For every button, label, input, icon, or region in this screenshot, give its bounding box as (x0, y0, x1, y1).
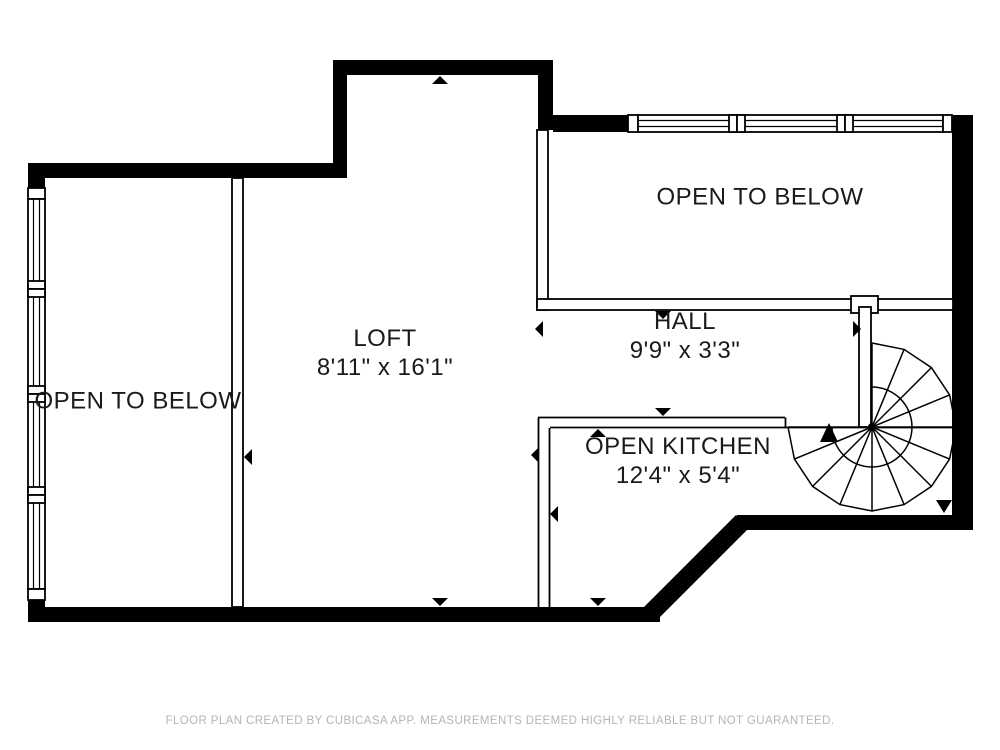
wall-bottom (28, 607, 660, 622)
window-mullion (837, 115, 845, 132)
room-name: LOFT (317, 324, 453, 353)
exterior-walls (28, 60, 973, 622)
wall-right (952, 115, 973, 530)
top-window (628, 115, 952, 132)
window-mullion (737, 115, 745, 132)
wall-left-top-block (28, 163, 45, 188)
window-sill (28, 589, 45, 600)
wall-bump-right (538, 60, 553, 130)
wall-hall-top (537, 299, 953, 310)
room-label-loft: LOFT 8'11" x 16'1" (317, 324, 453, 382)
disclaimer-text: FLOOR PLAN CREATED BY CUBICASA APP. MEAS… (0, 715, 1000, 727)
marker-down-icon (432, 598, 448, 606)
room-name: OPEN TO BELOW (35, 387, 242, 416)
room-label-open-to-below-upper: OPEN TO BELOW (657, 183, 864, 212)
window-mullion (729, 115, 737, 132)
wall-top-left (28, 163, 347, 178)
room-label-open-to-below-left: OPEN TO BELOW (35, 387, 242, 416)
stair-center-post (868, 423, 876, 431)
room-label-hall: HALL 9'9" x 3'3" (630, 307, 740, 365)
room-name: HALL (630, 307, 740, 336)
window-sill (628, 115, 638, 132)
marker-down-icon (655, 408, 671, 416)
room-name: OPEN KITCHEN (585, 432, 771, 461)
wall-diagonal (644, 515, 747, 622)
room-dimensions: 9'9" x 3'3" (630, 336, 740, 365)
window-mullion (845, 115, 853, 132)
marker-up-icon (432, 76, 448, 84)
room-dimensions: 8'11" x 16'1" (317, 353, 453, 382)
floor-plan-drawing (0, 0, 1000, 750)
window-sill (28, 188, 45, 199)
room-dimensions: 12'4" x 5'4" (585, 461, 771, 490)
wall-bump-top (333, 60, 553, 75)
window-glass (638, 115, 943, 132)
wall-top-right (553, 115, 628, 132)
window-mullion (28, 289, 45, 297)
wall-stair (859, 307, 871, 427)
marker-left-icon (550, 506, 558, 522)
up-arrow-icon (820, 423, 838, 442)
room-label-open-kitchen: OPEN KITCHEN 12'4" x 5'4" (585, 432, 771, 490)
marker-left-icon (531, 447, 539, 463)
marker-left-icon (244, 449, 252, 465)
wall-left-bottom-block (28, 600, 45, 622)
window-mullion (28, 487, 45, 495)
marker-down-icon (590, 598, 606, 606)
wall-bump-left (333, 60, 347, 178)
window-sill (943, 115, 952, 132)
room-name: OPEN TO BELOW (657, 183, 864, 212)
window-mullion (28, 495, 45, 503)
floor-plan: OPEN TO BELOW LOFT 8'11" x 16'1" OPEN TO… (0, 0, 1000, 750)
marker-down-icon (936, 500, 952, 513)
wall-bottom-right (737, 515, 973, 530)
window-mullion (28, 281, 45, 289)
wall-open-below-left (537, 130, 548, 310)
marker-left-icon (535, 321, 543, 337)
